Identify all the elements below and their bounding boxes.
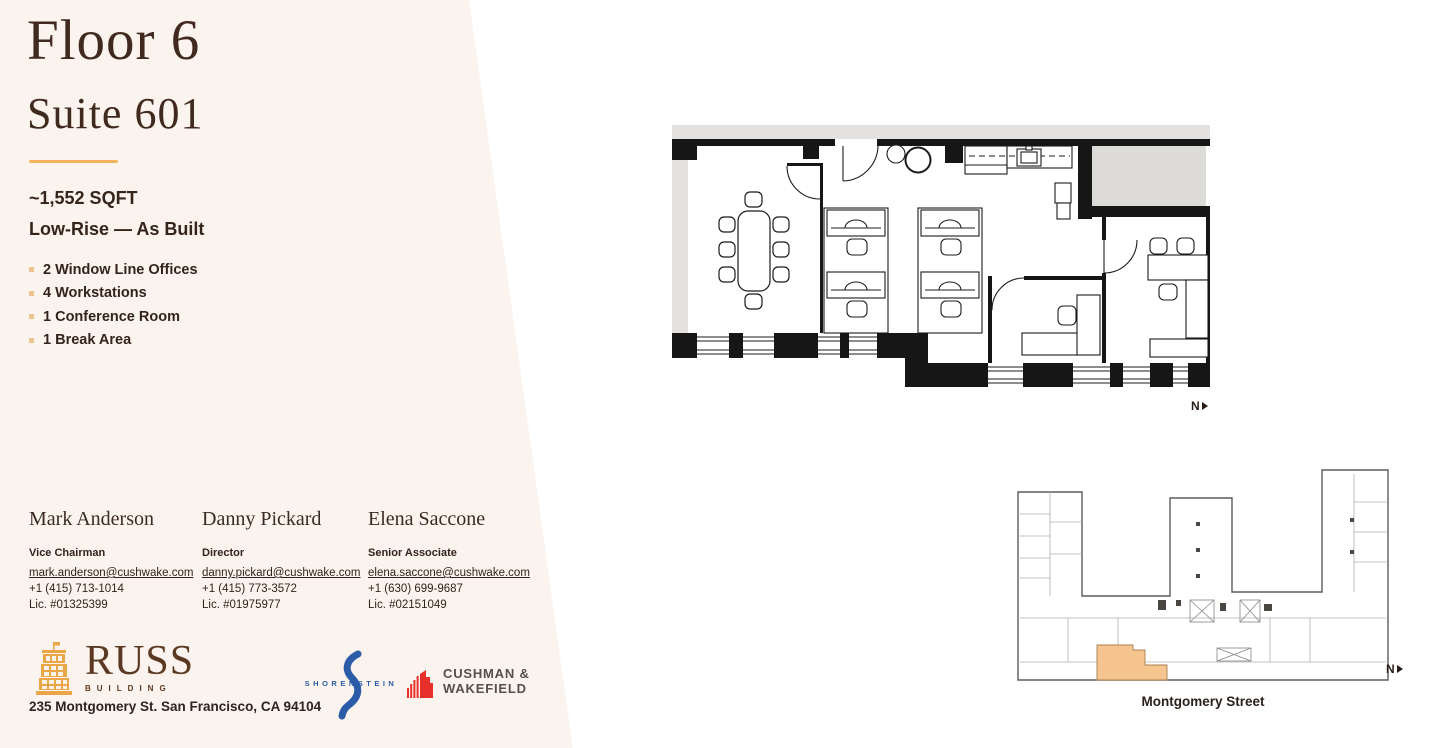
cushman-line2: WAKEFIELD — [443, 682, 530, 697]
contact-name: Elena Saccone — [368, 508, 538, 531]
shorenstein-logo: SHORENSTEIN — [296, 650, 406, 722]
contact-license: Lic. #01975977 — [202, 599, 372, 611]
sqft-value: ~1,552 SQFT — [29, 188, 138, 209]
north-label: N — [1191, 399, 1200, 413]
office-chair — [1058, 306, 1076, 325]
feature-label: 1 Conference Room — [43, 309, 180, 325]
building-address: 235 Montgomery St. San Francisco, CA 941… — [29, 699, 321, 714]
feature-label: 2 Window Line Offices — [43, 262, 198, 278]
suite-floor-plan — [672, 125, 1210, 395]
contact-card: Elena Saccone Senior Associate elena.sac… — [368, 508, 538, 611]
bullet-marker — [29, 338, 34, 343]
russ-building-icon — [30, 642, 78, 696]
break-cabinet — [965, 146, 1007, 174]
feature-item: 4 Workstations — [29, 282, 198, 306]
russ-wordmark-sub: BUILDING — [85, 684, 194, 693]
contact-phone: +1 (415) 713-1014 — [29, 583, 199, 595]
building-outline — [1018, 470, 1388, 680]
contact-name: Danny Pickard — [202, 508, 372, 531]
workstation-cluster — [918, 208, 982, 333]
russ-building-logo: RUSS BUILDING — [30, 642, 194, 696]
window-office-1 — [1022, 295, 1100, 355]
feature-item: 2 Window Line Offices — [29, 258, 198, 282]
accent-divider — [29, 160, 118, 163]
contact-phone: +1 (415) 773-3572 — [202, 583, 372, 595]
break-chair — [906, 148, 931, 173]
contact-title: Vice Chairman — [29, 547, 199, 559]
contact-card: Mark Anderson Vice Chairman mark.anderso… — [29, 508, 199, 611]
conference-room — [719, 192, 789, 309]
cushman-wakefield-logo: CUSHMAN & WAKEFIELD — [407, 666, 530, 698]
window-line — [672, 333, 1210, 387]
contact-license: Lic. #01325399 — [29, 599, 199, 611]
window-office-2 — [1148, 238, 1208, 357]
office-desk — [1022, 333, 1078, 355]
workstation-cluster — [824, 208, 888, 333]
cushman-line1: CUSHMAN & — [443, 667, 530, 682]
north-arrow-icon — [1397, 665, 1403, 673]
cushman-wordmark: CUSHMAN & WAKEFIELD — [443, 667, 530, 697]
office-desk-return — [1077, 295, 1100, 355]
russ-wordmark: RUSS — [85, 642, 194, 682]
feature-list: 2 Window Line Offices 4 Workstations 1 C… — [29, 258, 198, 352]
contact-email-link[interactable]: elena.saccone@cushwake.com — [368, 567, 530, 579]
window-line-step — [905, 333, 988, 387]
floor-title: Floor 6 — [27, 10, 200, 73]
feature-label: 1 Break Area — [43, 332, 131, 348]
cushman-wakefield-icon — [407, 666, 435, 698]
contact-license: Lic. #02151049 — [368, 599, 538, 611]
bullet-marker — [29, 314, 34, 319]
office-chair — [1159, 284, 1177, 300]
bullet-marker — [29, 291, 34, 296]
contact-email-link[interactable]: danny.pickard@cushwake.com — [202, 567, 360, 579]
flyer-page: Floor 6 Suite 601 ~1,552 SQFT Low-Rise —… — [0, 0, 1439, 748]
feature-item: 1 Break Area — [29, 329, 198, 353]
contact-title: Senior Associate — [368, 547, 538, 559]
contact-name: Mark Anderson — [29, 508, 199, 531]
adjacent-space-shaded — [1092, 146, 1206, 206]
feature-label: 4 Workstations — [43, 285, 147, 301]
office-credenza — [1150, 339, 1208, 357]
bullet-marker — [29, 267, 34, 272]
guest-chair — [1177, 238, 1194, 254]
office-desk-return — [1186, 280, 1208, 338]
north-arrow-icon — [1202, 402, 1208, 410]
contact-title: Director — [202, 547, 372, 559]
build-type: Low-Rise — As Built — [29, 219, 204, 240]
street-label: Montgomery Street — [1078, 694, 1328, 709]
office-desk — [1148, 255, 1208, 280]
feature-item: 1 Conference Room — [29, 305, 198, 329]
north-label: N — [1386, 662, 1395, 676]
contact-card: Danny Pickard Director danny.pickard@cus… — [202, 508, 372, 611]
contact-phone: +1 (630) 699-9687 — [368, 583, 538, 595]
conference-table — [738, 211, 770, 291]
floor-plate-key-plan — [1008, 458, 1400, 698]
north-indicator: N — [1191, 399, 1208, 413]
break-table — [887, 145, 905, 163]
tall-cabinet — [1055, 183, 1071, 203]
shorenstein-s-icon — [296, 650, 406, 722]
guest-chair — [1150, 238, 1167, 254]
suite-title: Suite 601 — [27, 90, 203, 138]
north-indicator: N — [1386, 662, 1403, 676]
contact-email-link[interactable]: mark.anderson@cushwake.com — [29, 567, 193, 579]
